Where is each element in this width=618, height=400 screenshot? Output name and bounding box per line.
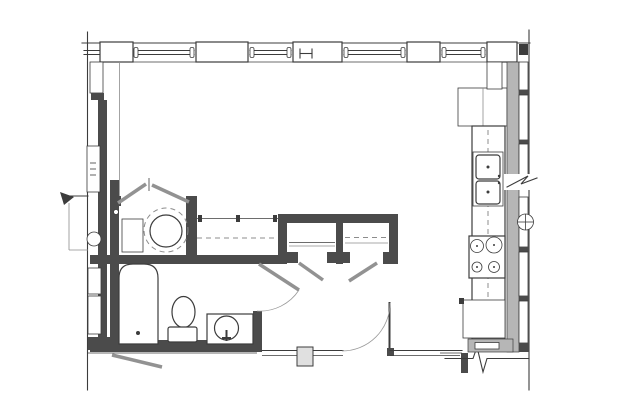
bathroom <box>90 264 299 352</box>
bifold-doors-icon <box>114 178 190 215</box>
window-piers <box>100 42 517 62</box>
west-wall-chase <box>60 32 120 390</box>
bathtub-icon <box>119 264 158 344</box>
vanity-sink-icon <box>207 314 253 344</box>
break-line-symbol <box>504 174 538 190</box>
wall-post <box>297 347 313 366</box>
base-cabinet <box>463 300 505 338</box>
closet-door-right <box>349 263 377 281</box>
toilet-icon <box>168 297 197 343</box>
range-cooktop-icon <box>469 236 505 278</box>
double-closet <box>278 214 398 281</box>
rod-bracket <box>236 215 240 222</box>
north-window-wall <box>82 42 530 62</box>
pipe-symbol <box>518 214 534 230</box>
lower-diagonal <box>112 355 162 367</box>
kitchen <box>458 62 507 339</box>
interior-wall <box>90 255 285 264</box>
bathroom-door <box>257 264 299 311</box>
closet-door-left <box>299 263 323 280</box>
refrigerator-icon <box>458 88 507 126</box>
laundry-shelf <box>122 219 143 252</box>
closet-rod-nook <box>197 215 278 238</box>
floor-plan-drawing <box>0 0 618 400</box>
wall-fixture-circle <box>87 232 101 246</box>
washer-dryer-icon <box>144 208 188 252</box>
west-window <box>90 62 103 93</box>
rod-bracket <box>198 215 202 222</box>
laundry-closet <box>113 178 197 258</box>
rod-bracket <box>273 215 277 222</box>
entry-door <box>342 302 394 356</box>
kitchen-sink-icon <box>473 152 503 206</box>
floor-plan <box>0 0 618 400</box>
electrical-panel <box>87 146 100 192</box>
wall-stub-post <box>461 353 468 373</box>
wall-jog-arrow <box>60 192 88 250</box>
